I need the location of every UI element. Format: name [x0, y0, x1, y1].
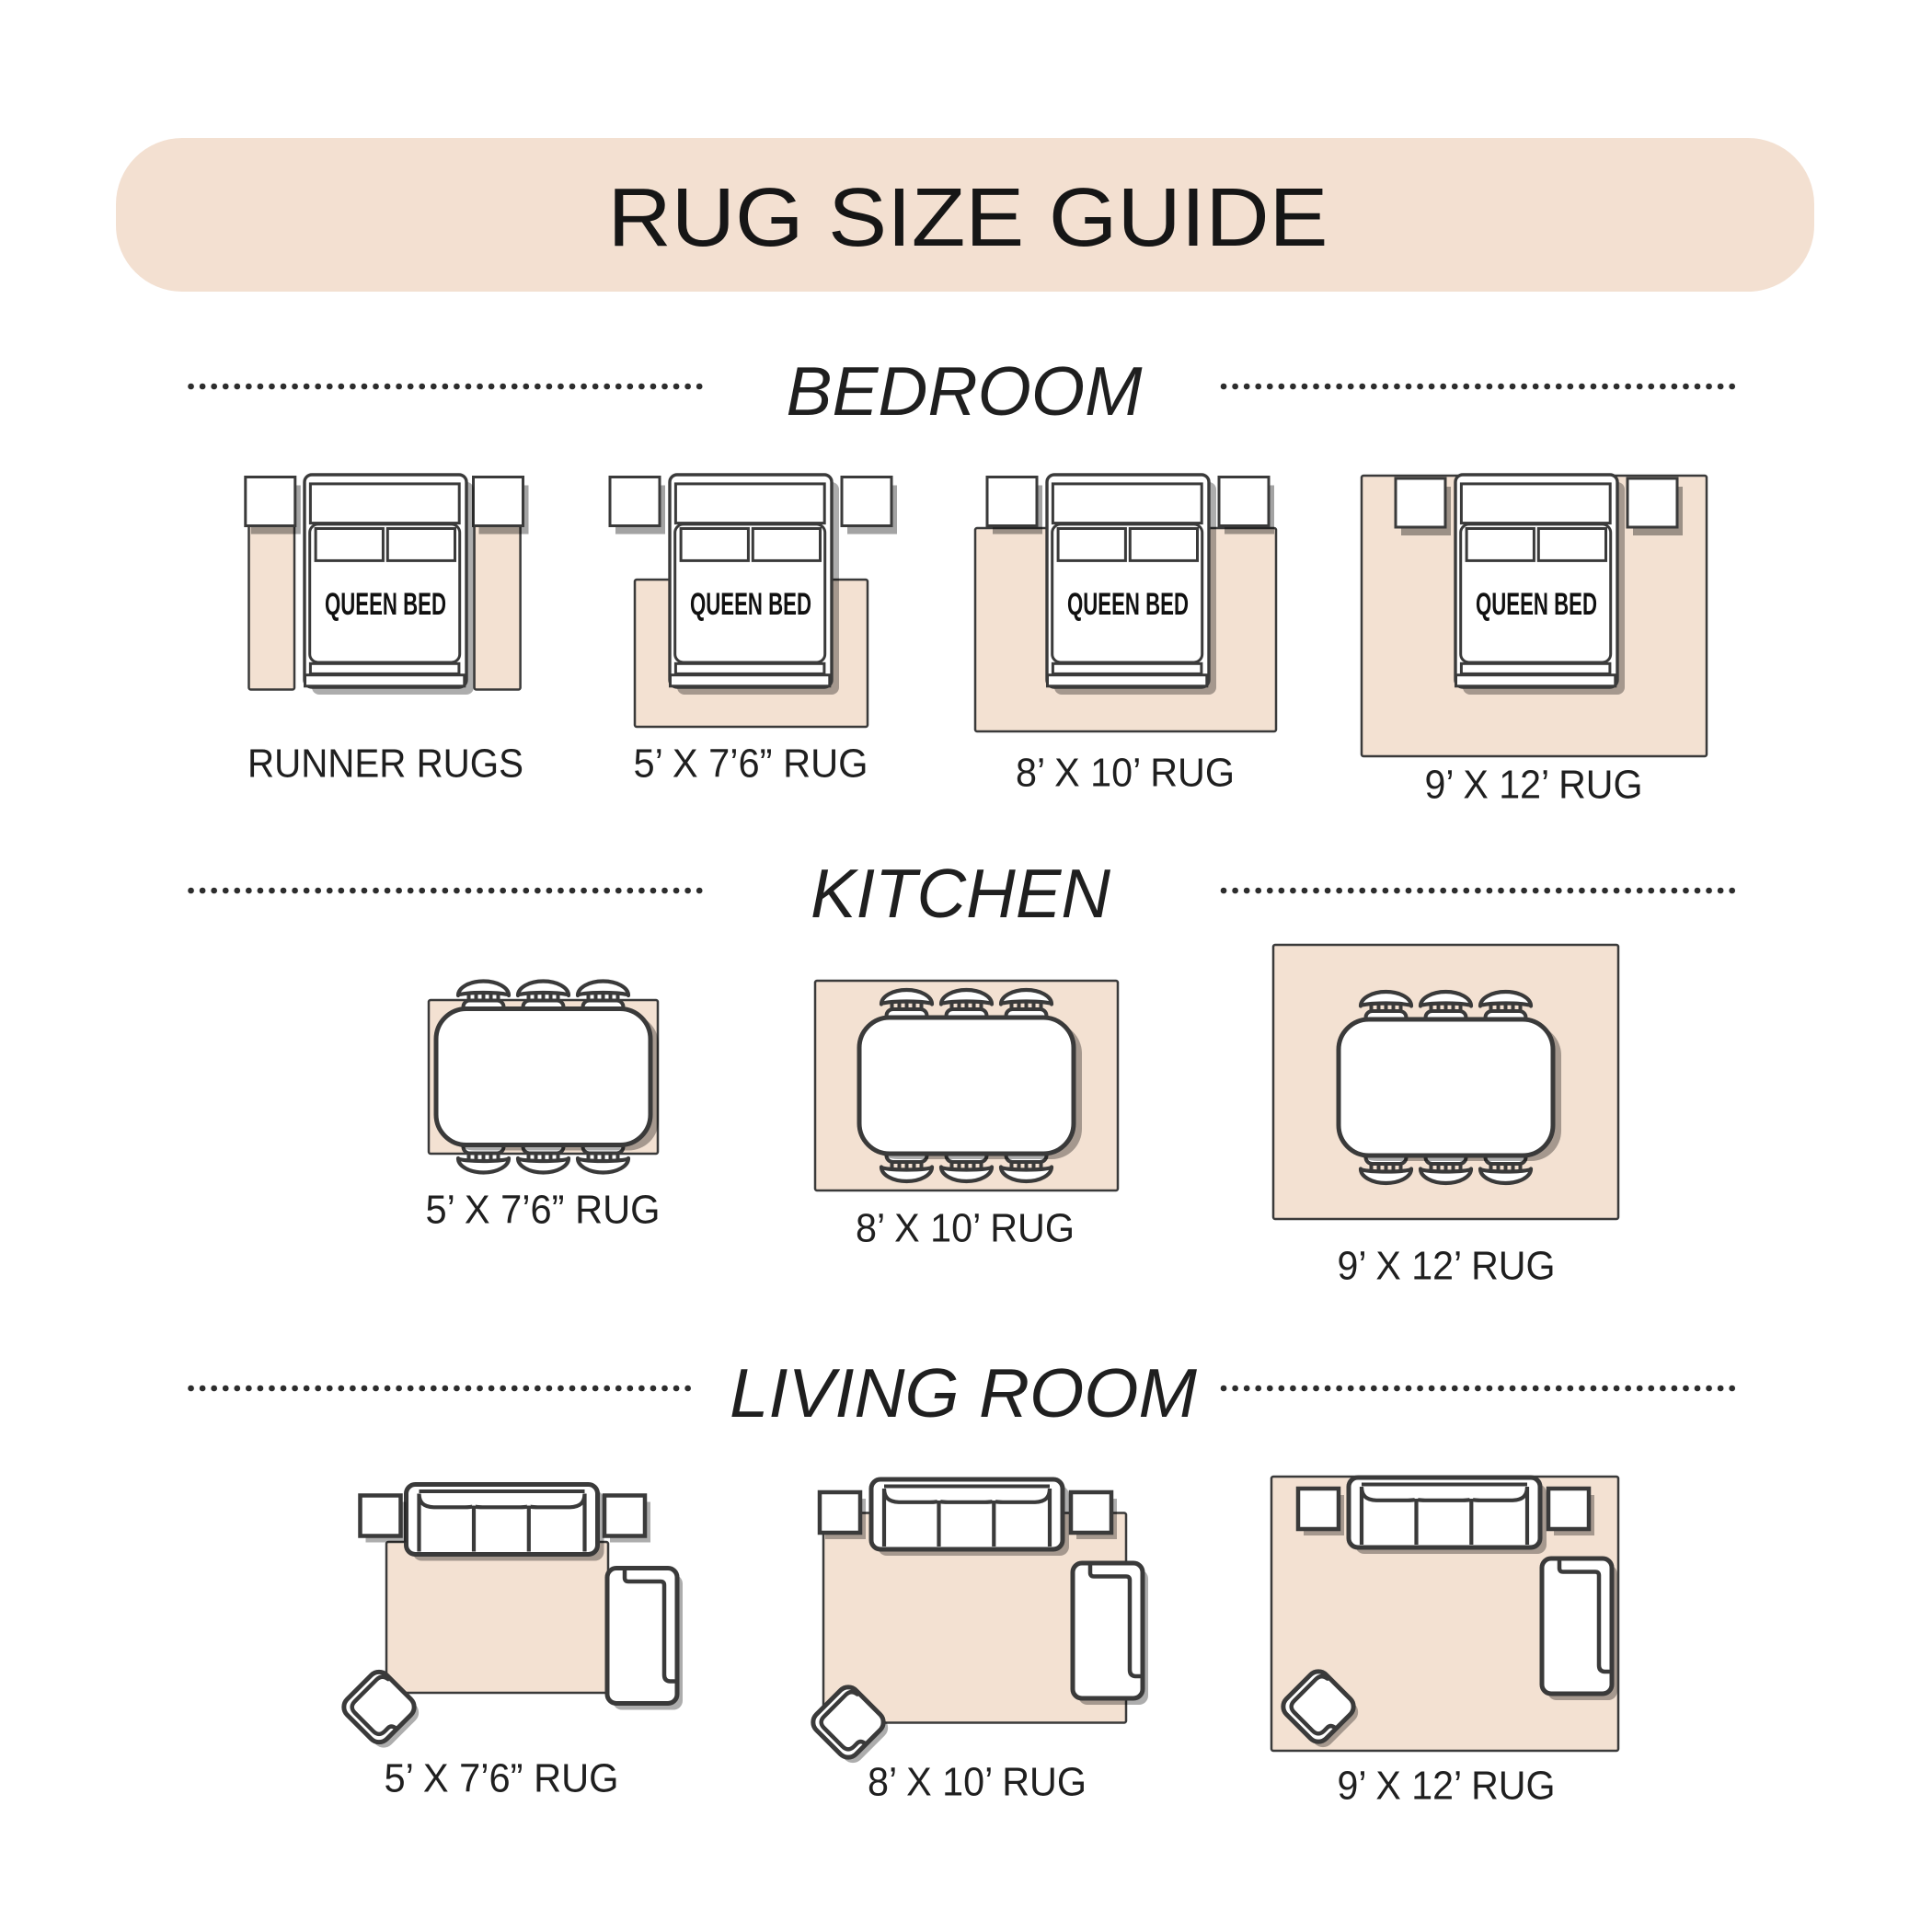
svg-text:5’ X 7’6” RUG: 5’ X 7’6” RUG — [426, 1188, 661, 1233]
svg-text:QUEEN BED: QUEEN BED — [1476, 587, 1597, 622]
svg-text:QUEEN BED: QUEEN BED — [1067, 587, 1189, 622]
svg-text:RUG SIZE GUIDE: RUG SIZE GUIDE — [608, 172, 1328, 264]
svg-text:5’ X 7’6” RUG: 5’ X 7’6” RUG — [634, 742, 868, 787]
svg-text:9’ X 12’ RUG: 9’ X 12’ RUG — [1425, 763, 1643, 808]
svg-text:LIVING ROOM: LIVING ROOM — [730, 1354, 1198, 1432]
svg-text:5’ X 7’6” RUG: 5’ X 7’6” RUG — [385, 1756, 619, 1801]
svg-text:9’ X 12’ RUG: 9’ X 12’ RUG — [1338, 1244, 1556, 1289]
svg-text:8’ X 10’ RUG: 8’ X 10’ RUG — [856, 1206, 1075, 1251]
svg-text:KITCHEN: KITCHEN — [811, 855, 1111, 932]
svg-text:8’ X 10’ RUG: 8’ X 10’ RUG — [868, 1760, 1087, 1805]
svg-text:RUNNER RUGS: RUNNER RUGS — [247, 742, 523, 787]
svg-text:QUEEN BED: QUEEN BED — [690, 587, 811, 622]
svg-text:8’ X 10’ RUG: 8’ X 10’ RUG — [1016, 751, 1235, 796]
svg-text:9’ X 12’ RUG: 9’ X 12’ RUG — [1338, 1764, 1556, 1809]
svg-text:BEDROOM: BEDROOM — [787, 352, 1144, 430]
svg-text:QUEEN BED: QUEEN BED — [325, 587, 446, 622]
